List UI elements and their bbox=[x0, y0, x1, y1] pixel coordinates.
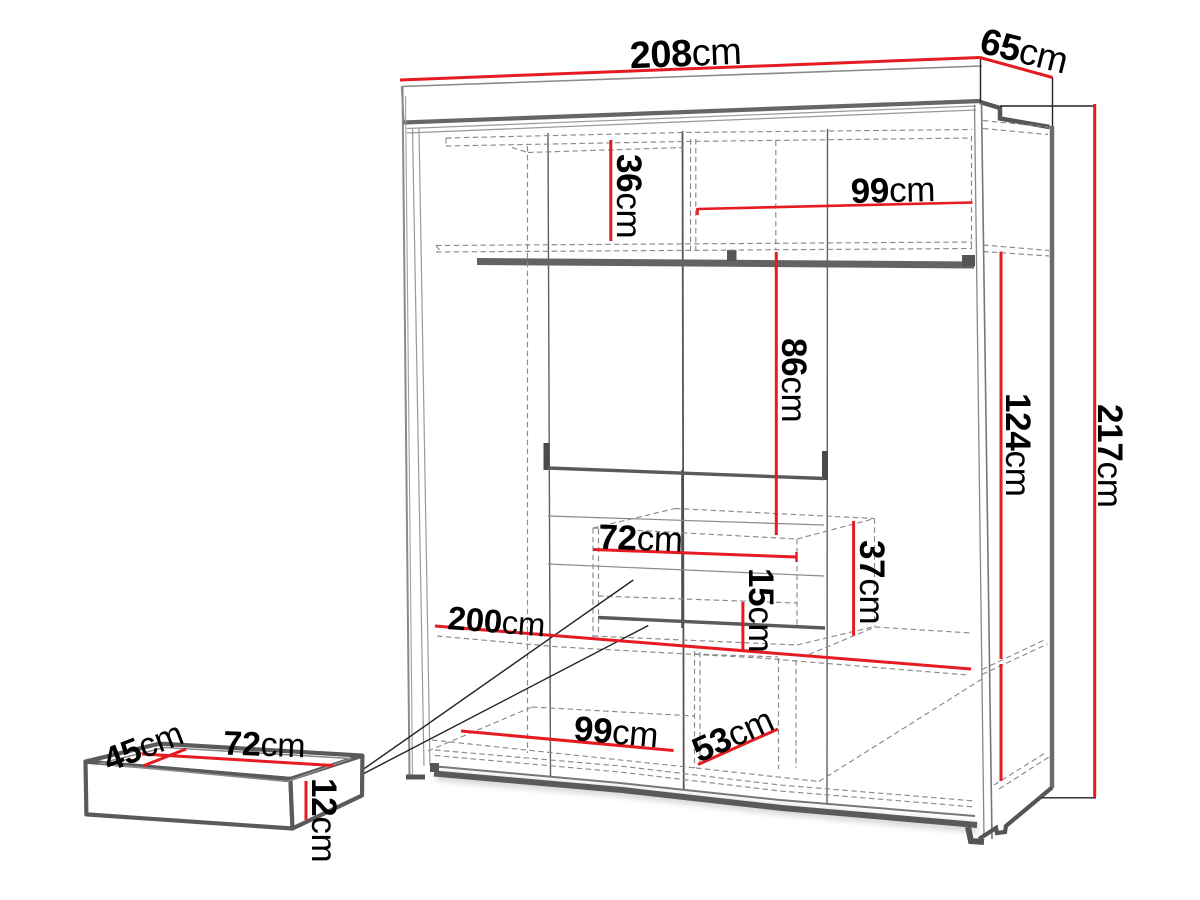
svg-text:217cm: 217cm bbox=[1090, 404, 1129, 508]
svg-text:37cm: 37cm bbox=[852, 540, 891, 624]
svg-text:86cm: 86cm bbox=[774, 338, 813, 422]
svg-text:36cm: 36cm bbox=[609, 154, 648, 238]
svg-text:124cm: 124cm bbox=[998, 393, 1037, 497]
svg-text:72cm: 72cm bbox=[598, 518, 684, 560]
svg-text:99cm: 99cm bbox=[572, 709, 659, 755]
svg-text:72cm: 72cm bbox=[223, 725, 306, 766]
svg-text:12cm: 12cm bbox=[304, 778, 343, 862]
svg-text:99cm: 99cm bbox=[850, 170, 935, 211]
svg-text:200cm: 200cm bbox=[446, 599, 546, 643]
svg-text:15cm: 15cm bbox=[741, 568, 780, 652]
svg-text:208cm: 208cm bbox=[629, 31, 742, 77]
